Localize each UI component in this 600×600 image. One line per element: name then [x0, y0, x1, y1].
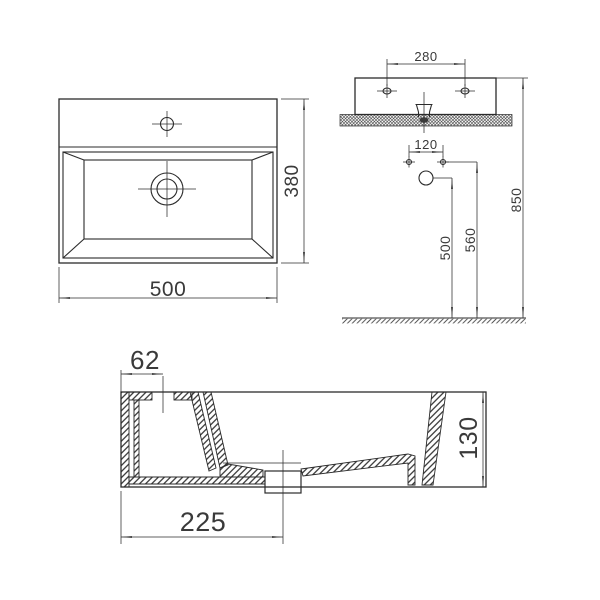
dim-label-outlet-height: 500 — [437, 236, 453, 261]
wall-fixing-point-left — [403, 157, 415, 168]
fixing-hole-right — [455, 84, 475, 98]
dim-label-depth: 380 — [282, 164, 303, 197]
right-wall-cut — [422, 392, 446, 485]
floor-line — [342, 318, 526, 323]
dimension-drain-offset: 225 — [121, 491, 283, 544]
waste-outlet-circle — [419, 171, 433, 185]
dimension-fixing-hole-spacing: 280 — [387, 49, 465, 86]
dimension-rim-height: 850 — [496, 78, 528, 318]
dimension-section-height: 130 — [455, 392, 483, 487]
dimension-outlet-spacing: 120 — [409, 137, 443, 157]
basin-floor-cut-left — [220, 464, 263, 477]
dimension-depth: 380 — [281, 99, 309, 263]
overflow-channel-wall-cut — [134, 400, 139, 477]
dim-label-section-height: 130 — [455, 416, 483, 459]
drain-hole — [138, 161, 196, 217]
faucet-hole — [152, 111, 182, 137]
front-view: 280 120 500 560 — [340, 49, 528, 323]
technical-drawing-sheet: 500 380 — [0, 0, 600, 600]
dim-label-drain-offset: 225 — [180, 507, 227, 537]
basin-outer-outline — [59, 99, 277, 263]
dim-label-width: 500 — [150, 278, 187, 301]
dim-label-tap-offset: 62 — [130, 345, 160, 375]
dimension-tap-offset: 62 — [121, 345, 163, 392]
floor-hatch — [342, 319, 526, 324]
top-view: 500 380 — [59, 99, 309, 303]
dim-label-outlet-spacing: 120 — [414, 137, 437, 152]
dimension-outlet-height: 500 — [433, 178, 453, 318]
deck-cut-right — [174, 392, 192, 400]
bottom-wall-cut — [129, 477, 265, 484]
dim-label-rim-height: 850 — [508, 188, 524, 213]
dim-label-fixing-hole-spacing: 280 — [414, 49, 437, 64]
basin-floor-cut-right — [301, 454, 415, 485]
left-outer-wall-cut — [121, 392, 129, 487]
deck-cut-left — [129, 392, 152, 400]
drain-trap — [416, 92, 433, 133]
dim-label-fixing-height: 560 — [462, 228, 478, 253]
section-view: 62 225 130 — [121, 345, 486, 544]
fixing-hole-left — [377, 84, 397, 98]
washbasin-drawing: 500 380 — [0, 0, 600, 600]
basin-front-outline — [355, 78, 496, 115]
dimension-width: 500 — [59, 267, 277, 303]
trap-outlet — [420, 117, 429, 123]
